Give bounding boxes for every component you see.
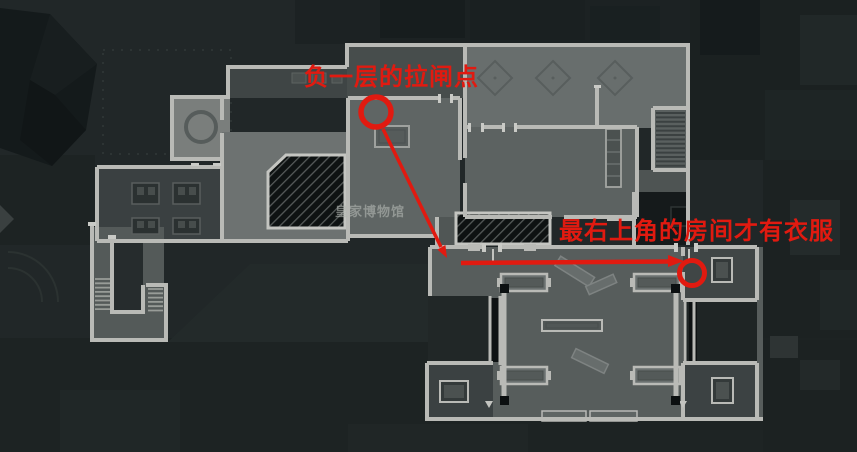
sw-stairs-island (114, 240, 143, 312)
dark-zone-left (428, 296, 490, 363)
cabinet (606, 129, 621, 187)
clothes-room-label: 最右上角的房间才有衣服 (559, 217, 834, 245)
map-watermark: 皇家博物馆 (335, 204, 405, 220)
power-breaker-label: 负一层的拉闸点 (304, 63, 479, 91)
landing-floor (637, 170, 688, 192)
map-canvas: 皇家博物馆 负一层的拉闸点 最右上角的房间才有衣服 (0, 0, 857, 452)
central-plinth (542, 320, 602, 331)
minimap-screenshot: 皇家博物馆 负一层的拉闸点 最右上角的房间才有衣服 (0, 0, 857, 452)
right-stairs-treads (656, 113, 685, 166)
hatched-area (268, 155, 345, 228)
